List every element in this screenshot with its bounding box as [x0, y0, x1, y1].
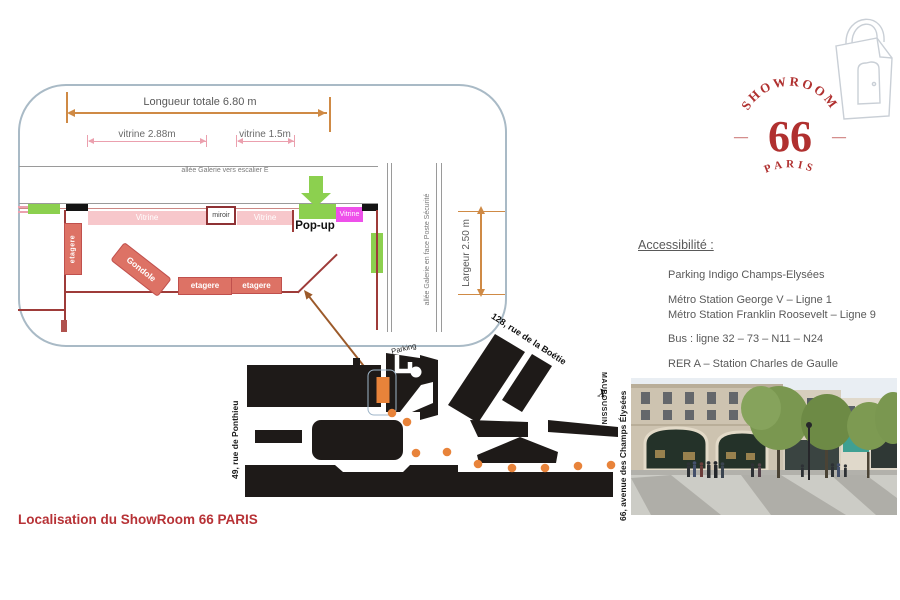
wall-stub: [61, 320, 67, 332]
caption-localisation: Localisation du ShowRoom 66 PARIS: [18, 512, 258, 527]
wall-short: [292, 210, 294, 232]
access-item-metro-2: Métro Station Franklin Roosevelt – Ligne…: [668, 309, 876, 321]
access-item-metro-1: Métro Station George V – Ligne 1: [668, 294, 832, 306]
access-item-rer: RER A – Station Charles de Gaulle: [668, 358, 838, 370]
logo-arc-text: SHOWROOM: [738, 73, 842, 112]
etagere-h1: etagere: [178, 277, 232, 295]
arrowhead-right-icon: [200, 138, 206, 144]
street-map: [240, 325, 620, 505]
etagere-h2: etagere: [231, 277, 282, 294]
champs-elysees-photo: [631, 378, 897, 515]
popup-label: Pop-up: [292, 220, 338, 232]
wall-spur: [18, 309, 65, 311]
corridor-line: [436, 163, 437, 332]
vitrine-magenta: Vitrine: [336, 207, 363, 222]
dim-vitrine-right-label: vitrine 1.5m: [235, 129, 295, 140]
down-arrow-icon: [309, 176, 323, 193]
arrowhead-up-icon: [477, 206, 485, 214]
map-label-rue-ponthieu: 49, rue de Ponthieu: [230, 401, 240, 479]
map-label-avenue-champs: 66, avenue des Champs Élysées: [618, 391, 628, 521]
wall-right: [376, 210, 378, 330]
access-item-bus: Bus : ligne 32 – 73 – N11 – N24: [668, 333, 823, 345]
dim-line-total: [69, 112, 327, 114]
arrowhead-right-icon: [318, 109, 326, 117]
arrowhead-down-icon: [477, 289, 485, 297]
dim-vitrine-left-label: vitrine 2.88m: [97, 129, 197, 140]
logo-number: 66: [768, 112, 812, 161]
vitrine-left: Vitrine: [88, 211, 206, 225]
corridor-line: [441, 163, 442, 332]
dim-width-label: Largeur 2.50 m: [461, 210, 472, 296]
showroom-location-marker: [377, 377, 390, 403]
black-fixture: [66, 204, 88, 211]
svg-text:SHOWROOM: SHOWROOM: [738, 73, 842, 112]
dim-total-label: Longueur totale 6.80 m: [100, 96, 300, 108]
corridor-line: [387, 163, 388, 332]
arrowhead-left-icon: [88, 138, 94, 144]
etagere-vertical: etagere: [64, 223, 82, 275]
dim-tick: [206, 135, 207, 147]
access-item-parking: Parking Indigo Champs-Elysées: [668, 269, 825, 281]
corridor-line: [391, 163, 392, 332]
wall-detail: [18, 206, 28, 208]
down-arrow-icon: [301, 193, 331, 207]
shopping-bag-icon: [836, 19, 892, 119]
wall-detail: [18, 211, 28, 213]
dim-line-vitrine-right: [238, 141, 294, 142]
logo-dash-right: —: [831, 130, 847, 145]
arrowhead-left-icon: [67, 109, 75, 117]
dim-line-vitrine-left: [89, 141, 206, 142]
allee-right-label: allée Galerie en face Poste Sécurité: [424, 167, 431, 332]
miroir-block: miroir: [206, 206, 236, 225]
accessibility-title: Accessibilité :: [638, 238, 714, 252]
allee-top-label: allée Galerie vers escalier E: [120, 167, 330, 174]
dim-tick: [66, 92, 68, 123]
etagere-label: etagere: [70, 235, 77, 263]
showroom-logo: SHOWROOM — 66 — PARIS: [700, 0, 900, 195]
logo-dash-left: —: [733, 130, 749, 145]
vitrine-middle: Vitrine: [237, 211, 293, 225]
slide: Longueur totale 6.80 m vitrine 2.88m vit…: [0, 0, 900, 600]
green-fixture: [28, 204, 60, 214]
dim-tick: [329, 97, 331, 132]
dim-line-width: [480, 214, 482, 293]
